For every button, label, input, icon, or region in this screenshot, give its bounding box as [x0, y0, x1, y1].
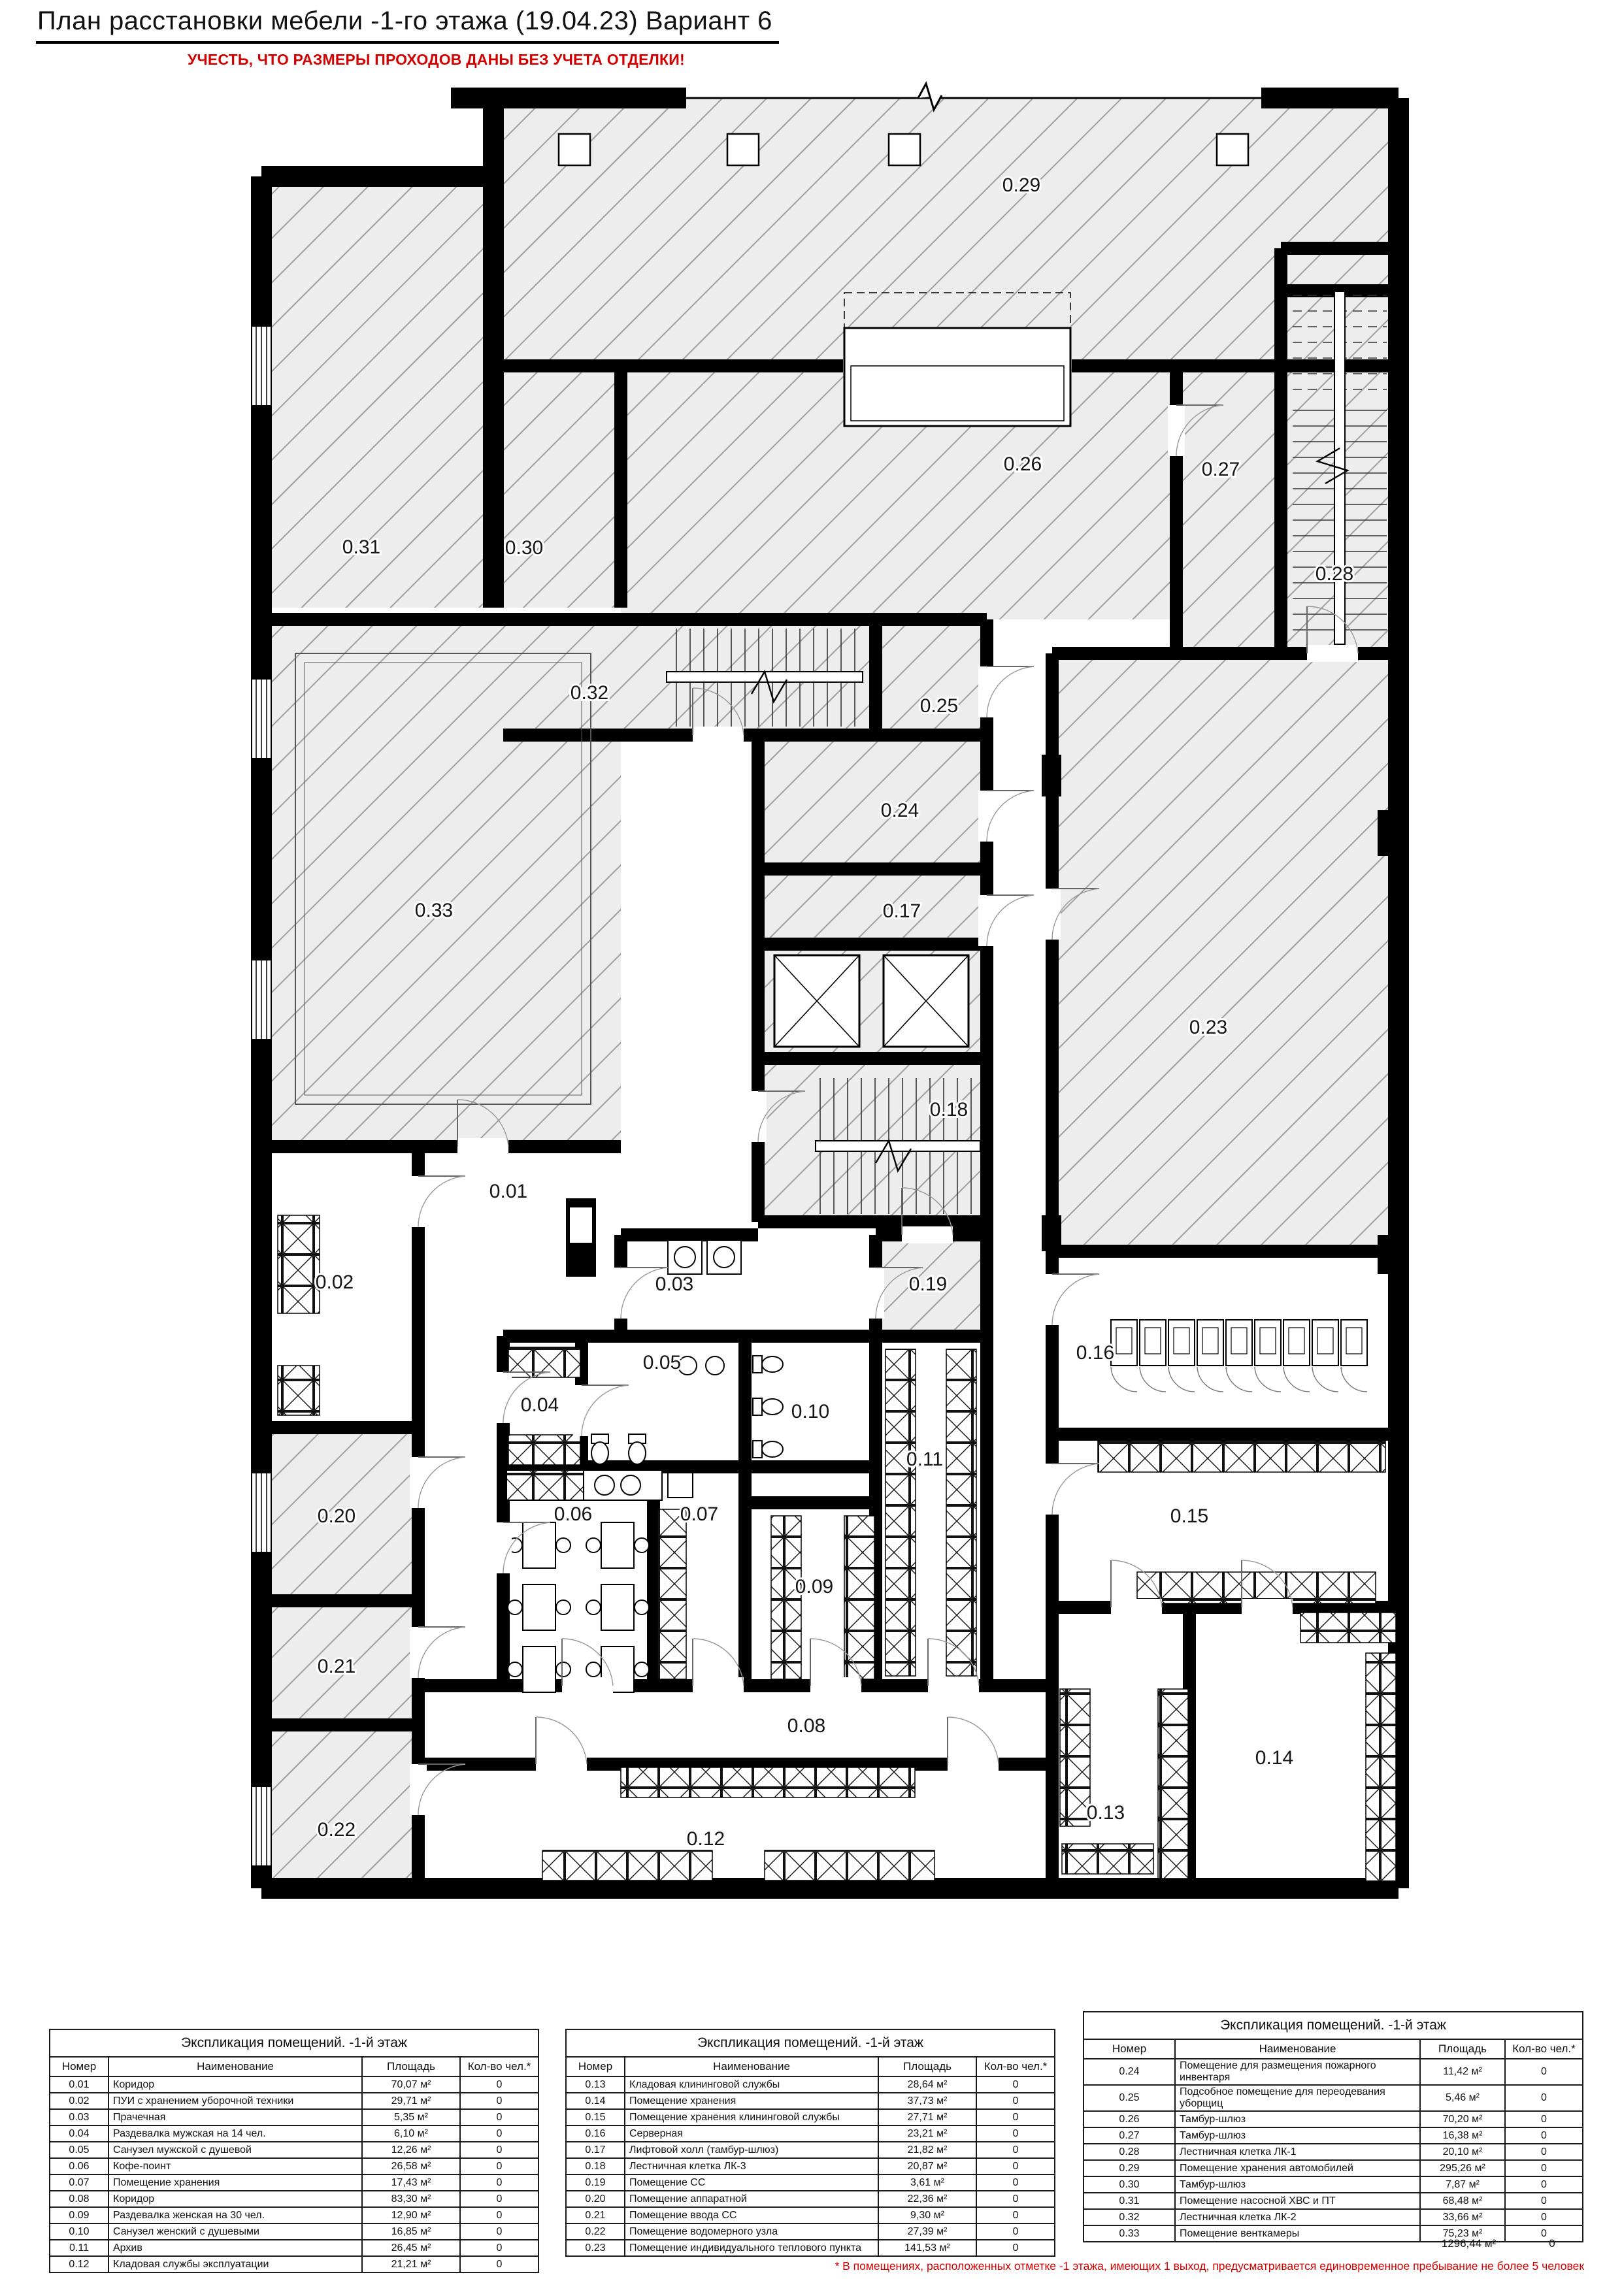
table-row: 0.15Помещение хранения клининговой служб…	[566, 2109, 1055, 2125]
table-header-row: НомерНаименованиеПлощадьКол-во чел.*	[1084, 2039, 1583, 2059]
table-row: 0.09Раздевалка женская на 30 чел.12,90 м…	[50, 2207, 538, 2223]
room-label-0.28: 0.28	[1316, 563, 1353, 585]
table-row: 0.21Помещение ввода СС9,30 м²0	[566, 2207, 1055, 2223]
room-label-0.27: 0.27	[1202, 459, 1240, 480]
table-title: Экспликация помещений. -1-й этаж	[1084, 2012, 1583, 2039]
room-label-0.06: 0.06	[554, 1503, 592, 1525]
kitchen-line	[506, 1470, 693, 1500]
table-row: 0.04Раздевалка мужская на 14 чел.6,10 м²…	[50, 2125, 538, 2142]
room-label-0.15: 0.15	[1170, 1505, 1208, 1527]
room-label-0.14: 0.14	[1255, 1747, 1293, 1769]
room-label-0.32: 0.32	[571, 682, 608, 704]
table-row: 0.30Тамбур-шлюз7,87 м²0	[1084, 2176, 1583, 2193]
table-title: Экспликация помещений. -1-й этаж	[566, 2029, 1055, 2057]
table-row: 0.31Помещение насосной ХВС и ПТ68,48 м²0	[1084, 2193, 1583, 2209]
room-label-0.20: 0.20	[318, 1505, 356, 1527]
table-title: Экспликация помещений. -1-й этаж	[50, 2029, 538, 2057]
column-header: Номер	[566, 2057, 625, 2076]
column-header: Кол-во чел.*	[460, 2057, 538, 2076]
table-row: 0.18Лестничная клетка ЛК-320,87 м²0	[566, 2158, 1055, 2174]
column-header: Наименование	[108, 2057, 362, 2076]
room-label-0.25: 0.25	[920, 695, 958, 717]
room-label-0.16: 0.16	[1076, 1342, 1114, 1364]
room-label-0.09: 0.09	[795, 1576, 833, 1598]
room-label-0.07: 0.07	[680, 1503, 718, 1525]
storage-racks	[278, 1215, 1396, 1882]
room-label-0.04: 0.04	[521, 1394, 559, 1416]
room-label-0.10: 0.10	[791, 1401, 829, 1422]
table-row: 0.19Помещение СС3,61 м²0	[566, 2174, 1055, 2191]
table-row: 0.24Помещение для размещения пожарного и…	[1084, 2059, 1583, 2085]
table-row: 0.03Прачечная5,35 м²0	[50, 2109, 538, 2125]
column-header: Кол-во чел.*	[1505, 2039, 1583, 2059]
total-area: 1296,44 м²	[1412, 2237, 1526, 2250]
table-row: 0.13Кладовая клининговой службы28,64 м²0	[566, 2076, 1055, 2093]
room-label-0.02: 0.02	[316, 1271, 354, 1293]
laundry-machines	[668, 1240, 741, 1274]
room-label-0.01: 0.01	[489, 1181, 527, 1202]
column-header: Наименование	[625, 2057, 878, 2076]
room-label-0.08: 0.08	[787, 1715, 825, 1737]
explication-table-2: Экспликация помещений. -1-й этаж НомерНа…	[565, 2029, 1055, 2257]
table-row: 0.32Лестничная клетка ЛК-233,66 м²0	[1084, 2209, 1583, 2225]
table-row: 0.29Помещение хранения автомобилей295,26…	[1084, 2160, 1583, 2176]
room-label-0.29: 0.29	[1002, 174, 1040, 196]
room-label-0.23: 0.23	[1189, 1017, 1227, 1038]
table-row: 0.08Коридор83,30 м²0	[50, 2191, 538, 2207]
table-header-row: НомерНаименованиеПлощадьКол-во чел.*	[50, 2057, 538, 2076]
fire-cabinet	[566, 1198, 596, 1277]
room-label-0.13: 0.13	[1087, 1802, 1125, 1824]
table-row: 0.20Помещение аппаратной22,36 м²0	[566, 2191, 1055, 2207]
room-label-0.31: 0.31	[342, 536, 380, 558]
table-row: 0.22Помещение водомерного узла27,39 м²0	[566, 2223, 1055, 2240]
column-header: Номер	[50, 2057, 108, 2076]
column-header: Площадь	[362, 2057, 460, 2076]
table-row: 0.01Коридор70,07 м²0	[50, 2076, 538, 2093]
floor-plan: 0.010.020.030.040.050.060.070.080.090.10…	[0, 0, 1622, 2293]
table-row: 0.07Помещение хранения17,43 м²0	[50, 2174, 538, 2191]
table-row: 0.25Подсобное помещение для переодевания…	[1084, 2085, 1583, 2111]
room-label-0.12: 0.12	[687, 1828, 725, 1850]
room-label-0.33: 0.33	[415, 900, 453, 921]
column-header: Площадь	[878, 2057, 976, 2076]
table-row: 0.17Лифтовой холл (тамбур-шлюз)21,82 м²0	[566, 2142, 1055, 2158]
explication-table-3: Экспликация помещений. -1-й этаж НомерНа…	[1083, 2011, 1583, 2242]
footnote: * В помещениях, расположенных отметке -1…	[835, 2259, 1584, 2273]
table-row: 0.12Кладовая службы эксплуатации21,21 м²…	[50, 2256, 538, 2272]
table-row: 0.26Тамбур-шлюз70,20 м²0	[1084, 2111, 1583, 2127]
column-header: Наименование	[1175, 2039, 1420, 2059]
table-row: 0.28Лестничная клетка ЛК-120,10 м²0	[1084, 2144, 1583, 2160]
column-header: Кол-во чел.*	[976, 2057, 1055, 2076]
room-label-0.19: 0.19	[909, 1273, 947, 1295]
table-row: 0.23Помещение индивидуального теплового …	[566, 2240, 1055, 2256]
room-label-0.22: 0.22	[318, 1819, 356, 1841]
sanitary-fixtures	[591, 1356, 783, 1464]
room-label-0.24: 0.24	[881, 800, 919, 821]
table-row: 0.11Архив26,45 м²0	[50, 2240, 538, 2256]
room-label-0.05: 0.05	[643, 1352, 681, 1373]
explication-table-1: Экспликация помещений. -1-й этаж НомерНа…	[49, 2029, 539, 2273]
table-row: 0.27Тамбур-шлюз16,38 м²0	[1084, 2127, 1583, 2144]
room-label-0.18: 0.18	[930, 1099, 968, 1121]
table-row: 0.06Кофе-поинт26,58 м²0	[50, 2158, 538, 2174]
column-header: Номер	[1084, 2039, 1175, 2059]
room-label-0.21: 0.21	[318, 1656, 356, 1677]
column-header: Площадь	[1420, 2039, 1505, 2059]
coffee-tables	[508, 1522, 649, 1692]
total-people: 0	[1523, 2237, 1581, 2250]
room-label-0.17: 0.17	[883, 900, 921, 922]
table-row: 0.02ПУИ с хранением уборочной техники29,…	[50, 2093, 538, 2109]
table-row: 0.05Санузел мужской с душевой12,26 м²0	[50, 2142, 538, 2158]
room-label-0.03: 0.03	[655, 1273, 693, 1295]
table-header-row: НомерНаименованиеПлощадьКол-во чел.*	[566, 2057, 1055, 2076]
room-label-0.11: 0.11	[906, 1449, 943, 1470]
room-label-0.26: 0.26	[1004, 453, 1042, 475]
table-row: 0.10Санузел женский с душевыми16,85 м²0	[50, 2223, 538, 2240]
table-row: 0.16Серверная23,21 м²0	[566, 2125, 1055, 2142]
table-row: 0.14Помещение хранения37,73 м²0	[566, 2093, 1055, 2109]
room-label-0.30: 0.30	[505, 537, 543, 559]
